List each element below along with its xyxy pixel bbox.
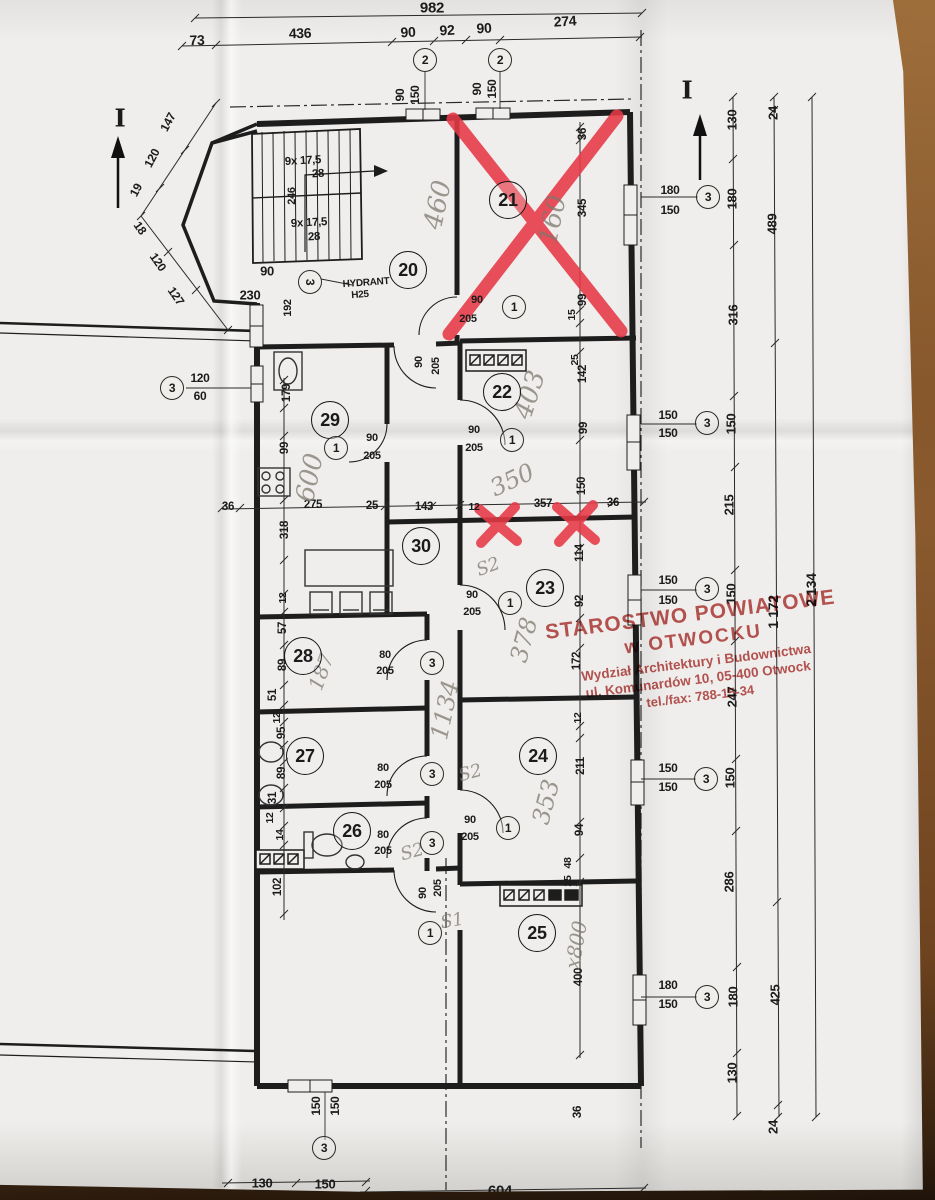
dimension-label: 180 <box>726 987 741 1008</box>
photo-of-floor-plan: { "stamp":{ "line1":"STAROSTWO POWIATOWE… <box>0 0 935 1200</box>
room-number: 28 <box>284 637 322 675</box>
dimension-label: 230 <box>240 288 261 303</box>
dimension-label: 12 <box>264 812 276 823</box>
pencil-note: 160 <box>533 193 572 247</box>
dimension-label: 150 <box>660 203 679 217</box>
dimension-label: 90 <box>470 83 484 96</box>
dimension-label: 90 <box>366 432 378 444</box>
dimension-label: 147 <box>157 110 178 133</box>
axis-bubble: 1 <box>498 591 522 615</box>
dimension-label: 114 <box>574 544 586 562</box>
floor-plan-paper: 9827343690929027490150901501471201918120… <box>0 0 935 1192</box>
dimension-label: 150 <box>658 573 677 587</box>
dimension-label: 180 <box>660 183 679 197</box>
axis-bubble: 3 <box>695 985 719 1009</box>
dimension-label: 205 <box>461 831 478 843</box>
dimension-label: 180 <box>658 978 677 992</box>
dimension-label: 48 <box>562 857 574 868</box>
dimension-label: 25 <box>366 500 378 512</box>
pencil-note: S2 <box>474 553 503 581</box>
dimension-label: 14 <box>274 829 286 840</box>
dimension-label: 1 172 <box>765 595 781 629</box>
dimension-label: 205 <box>376 665 393 677</box>
dimension-label: 120 <box>147 250 169 274</box>
handwritten-hydrant-note: HYDRANT <box>342 276 389 290</box>
section-marker: I <box>115 104 126 133</box>
dimension-label: 102 <box>272 878 284 896</box>
axis-bubble: 1 <box>496 816 520 840</box>
dimension-label: 90 <box>471 294 483 306</box>
dimension-label: 246 <box>286 187 298 204</box>
dimension-label: 80 <box>377 762 389 774</box>
handwritten-hydrant-note: H25 <box>351 289 369 301</box>
axis-bubble: 3 <box>298 270 322 294</box>
dimension-label: 150 <box>658 997 677 1011</box>
dimension-label: 150 <box>328 1096 342 1115</box>
dimension-label: 205 <box>374 779 391 791</box>
dimension-label: 99 <box>279 442 291 454</box>
dimension-label: 345 <box>577 199 589 217</box>
room-number: 24 <box>519 737 557 775</box>
dimension-label: 92 <box>574 595 586 607</box>
dimension-label: 24 <box>766 106 781 120</box>
axis-bubble: 3 <box>420 651 444 675</box>
dimension-label: 150 <box>658 761 677 775</box>
dimension-label: 92 <box>439 22 455 39</box>
dimension-label: 90 <box>413 356 425 368</box>
room-number: 23 <box>526 569 564 607</box>
dimension-label: 179 <box>281 384 293 402</box>
dimension-label: 142 <box>577 365 589 383</box>
pencil-note: S2 <box>456 760 484 786</box>
pencil-note: 378 <box>505 615 544 666</box>
dimension-label: 205 <box>459 313 476 325</box>
dimension-label: 150 <box>658 780 677 794</box>
axis-bubble: 1 <box>418 921 442 945</box>
axis-bubble: 3 <box>160 376 184 400</box>
dimension-label: 80 <box>377 829 389 841</box>
dimension-label: 436 <box>288 25 311 42</box>
dimension-label: 205 <box>363 450 380 462</box>
dimension-label: 205 <box>463 606 480 618</box>
dimension-label: 90 <box>466 589 478 601</box>
dimension-label: 143 <box>415 501 433 513</box>
dimension-label: 36 <box>572 1106 584 1118</box>
dimension-label: 425 <box>768 985 783 1006</box>
dimension-label: 982 <box>420 0 444 17</box>
room-number: 20 <box>389 251 427 289</box>
dimension-label: 489 <box>765 214 780 235</box>
dimension-label: 90 <box>260 264 274 279</box>
dimension-label: 12 <box>468 501 479 513</box>
room-number: 26 <box>333 812 371 850</box>
dimension-label: 36 <box>222 501 234 513</box>
axis-bubble: 2 <box>488 48 512 72</box>
dimension-label: 150 <box>658 593 677 607</box>
axis-bubble: 1 <box>500 428 524 452</box>
dimension-label: 90 <box>476 20 492 37</box>
dimension-label: 9x 17,5 <box>291 216 328 230</box>
dimension-label: 130 <box>725 110 740 131</box>
dimension-label: 9x 17,5 <box>285 154 322 168</box>
axis-bubble: 3 <box>312 1136 336 1160</box>
dimension-label: 36 <box>577 128 589 140</box>
dimension-label: 130 <box>725 1063 740 1084</box>
dimension-label: 172 <box>571 652 583 670</box>
pencil-note: x800 <box>560 919 592 971</box>
dimension-label: 274 <box>553 12 576 29</box>
dimension-label: 286 <box>722 872 737 893</box>
dimension-label: 150 <box>408 85 422 104</box>
dimension-label: 150 <box>485 79 499 98</box>
dimension-label: 90 <box>468 424 480 436</box>
dimension-label: 120 <box>190 371 209 385</box>
dimension-label: 18 <box>131 219 150 237</box>
dimension-label: 316 <box>726 305 741 326</box>
axis-bubble: 2 <box>413 48 437 72</box>
dimension-label: 150 <box>658 426 677 440</box>
dimension-label: 28 <box>312 168 325 181</box>
dimension-label: 180 <box>725 189 740 210</box>
plan-annotations: 9827343690929027490150901501471201918120… <box>0 0 935 1192</box>
dimension-label: 130 <box>252 1176 273 1191</box>
dimension-label: 12 <box>271 712 283 723</box>
dimension-label: 90 <box>417 887 429 899</box>
dimension-label: 2 134 <box>803 573 819 607</box>
axis-bubble: 1 <box>502 295 526 319</box>
dimension-label: 36 <box>607 497 619 509</box>
dimension-label: 150 <box>315 1177 336 1192</box>
pencil-note: 353 <box>527 777 566 828</box>
dimension-label: 150 <box>724 584 739 605</box>
dimension-label: 604 <box>488 1183 512 1200</box>
dimension-label: 99 <box>577 294 589 306</box>
dimension-label: 150 <box>658 408 677 422</box>
dimension-label: 12 <box>277 592 289 603</box>
dimension-label: 150 <box>724 414 739 435</box>
room-number: 30 <box>402 527 440 565</box>
dimension-label: 25 <box>562 875 574 886</box>
axis-bubble: 3 <box>420 762 444 786</box>
room-number: 29 <box>311 401 349 439</box>
pencil-note: 350 <box>486 458 539 502</box>
dimension-label: 80 <box>379 649 391 661</box>
dimension-label: 90 <box>393 89 407 102</box>
dimension-label: 28 <box>308 231 321 244</box>
dimension-label: 318 <box>279 521 291 539</box>
pencil-note: 600 <box>290 451 329 505</box>
dimension-label: 215 <box>722 495 737 516</box>
dimension-label: 150 <box>309 1096 323 1115</box>
dimension-label: 99 <box>578 422 590 434</box>
dimension-label: 12 <box>572 712 584 723</box>
axis-bubble: 3 <box>694 767 718 791</box>
dimension-label: 247 <box>725 687 740 708</box>
axis-bubble: 3 <box>420 831 444 855</box>
dimension-label: 205 <box>465 442 482 454</box>
dimension-label: 127 <box>165 284 187 308</box>
dimension-label: 15 <box>566 309 578 320</box>
dimension-label: 89 <box>276 767 288 779</box>
dimension-label: 94 <box>574 824 586 836</box>
pencil-note: 1134 <box>425 678 465 742</box>
room-number: 21 <box>489 181 527 219</box>
dimension-label: 60 <box>194 389 207 403</box>
dimension-label: 24 <box>766 1120 781 1134</box>
dimension-label: 205 <box>374 845 391 857</box>
dimension-label: 73 <box>189 32 205 49</box>
dimension-label: 90 <box>400 24 416 41</box>
dimension-label: 357 <box>534 498 552 510</box>
dimension-label: 95 <box>276 727 288 739</box>
pencil-note: 460 <box>418 178 457 232</box>
axis-bubble: 3 <box>695 577 719 601</box>
dimension-label: 90 <box>464 814 476 826</box>
axis-bubble: 3 <box>695 411 719 435</box>
room-number: 27 <box>286 737 324 775</box>
dimension-label: 31 <box>267 792 279 804</box>
dimension-label: 150 <box>723 768 738 789</box>
section-marker: I <box>682 76 693 105</box>
room-number: 22 <box>483 373 521 411</box>
pencil-note: S1 <box>439 909 465 934</box>
dimension-label: 51 <box>267 689 279 701</box>
dimension-label: 57 <box>277 622 289 634</box>
dimension-label: 211 <box>575 757 587 775</box>
axis-bubble: 3 <box>696 185 720 209</box>
dimension-label: 205 <box>430 357 442 374</box>
dimension-label: 120 <box>141 146 162 169</box>
dimension-label: 205 <box>432 879 444 896</box>
room-number: 25 <box>518 914 556 952</box>
dimension-label: 19 <box>127 181 145 199</box>
axis-bubble: 1 <box>324 436 348 460</box>
dimension-label: 150 <box>576 477 588 495</box>
dimension-label: 192 <box>282 299 294 316</box>
